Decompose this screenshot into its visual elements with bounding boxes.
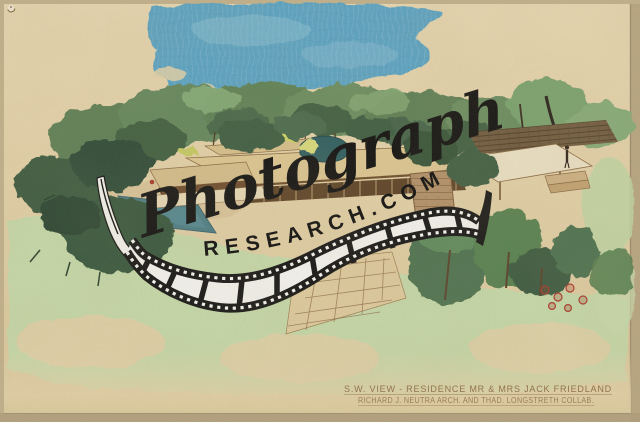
scanned-rendering-photo: Photograph RESEARCH.COM S.W. VIEW - RESI… xyxy=(0,0,640,422)
artwork-canvas: Photograph RESEARCH.COM S.W. VIEW - RESI… xyxy=(0,0,640,422)
paper-grain-texture xyxy=(0,0,640,422)
